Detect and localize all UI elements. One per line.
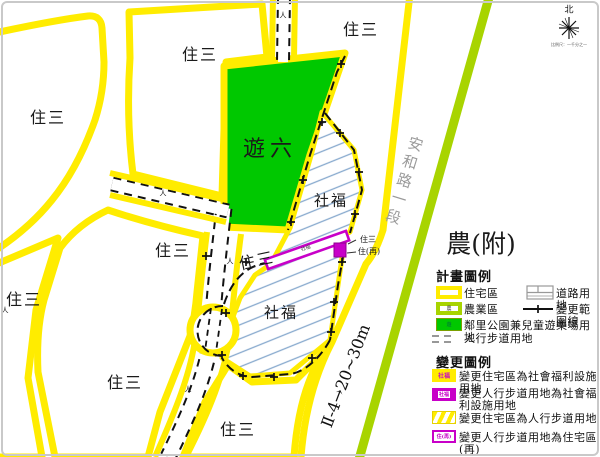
- change-swatch-walkway-to-residential: 住(再): [432, 430, 456, 443]
- north-label: 北: [564, 7, 573, 16]
- change-boundary-symbol: [523, 305, 553, 313]
- change-swatch-walkway-to-welfare: 社福: [432, 388, 456, 401]
- road-land-symbol: [527, 286, 553, 299]
- residential-swatch: [436, 286, 462, 299]
- pedestrian-mark: 人: [2, 308, 9, 315]
- zone-label-residential: 住三: [107, 375, 143, 391]
- zone-label-residential: 住三: [182, 47, 218, 63]
- zone-label-residential: 住三: [30, 110, 66, 126]
- walkway-to-residential-parcel: [334, 243, 346, 257]
- walkway-symbol-dashes: [432, 336, 456, 342]
- parcel-label-residential: 住三: [360, 236, 376, 244]
- zone-label-residential: 住三: [155, 243, 191, 259]
- zone-label-residential: 住三: [343, 22, 379, 38]
- plan-legend-walkway: 人行步道用地: [464, 333, 533, 345]
- swatch-text: 住(再): [437, 433, 452, 440]
- zone-label-residential: 住三: [220, 422, 256, 438]
- swatch-text: 社福: [438, 391, 450, 398]
- pedestrian-mark: 人: [227, 259, 234, 266]
- change-swatch-residential-to-walkway: [432, 411, 456, 424]
- north-star-icon: [559, 17, 579, 39]
- parcel-label-residential-re: 住(再): [358, 248, 380, 256]
- scale-note: 比例尺：一千分之一: [551, 43, 587, 47]
- park-swatch: 遊: [436, 318, 462, 331]
- pedestrian-mark: 人: [160, 191, 167, 198]
- zone-label-agriculture: 農(附): [446, 232, 516, 257]
- zone-label-welfare: 社福: [264, 306, 298, 321]
- swatch-text: 社福: [438, 371, 450, 380]
- park-swatch-symbol: 遊: [446, 321, 451, 328]
- zone-label-residential: 住三: [6, 292, 42, 308]
- plan-legend-title: 計畫圖例: [436, 266, 492, 285]
- change-legend-item-4: 變更人行步道用地為住宅區(再): [459, 432, 600, 456]
- change-legend-item-3: 變更住宅區為人行步道用地: [459, 413, 597, 425]
- zone-label-welfare: 社福: [314, 194, 348, 209]
- plan-map-sheet: 住三 住三 住三 住三 住三 住三 住三 住三 遊六 社福 社福 農(附) 住三…: [0, 0, 600, 457]
- change-swatch-welfare: 社福: [432, 369, 456, 382]
- plan-legend-residential: 住宅區: [464, 288, 499, 300]
- roundabout: [190, 307, 236, 353]
- agriculture-swatch-symbol: 農: [446, 305, 451, 312]
- agriculture-swatch: 農: [436, 302, 462, 315]
- zone-label-park: 遊六: [243, 139, 297, 161]
- pedestrian-mark: 人: [280, 13, 287, 20]
- change-legend-item-2: 變更人行步道用地為社會福利設施用地: [459, 388, 599, 412]
- pedestrian-mark: 人: [185, 387, 192, 394]
- plan-legend-agriculture: 農業區: [464, 304, 499, 316]
